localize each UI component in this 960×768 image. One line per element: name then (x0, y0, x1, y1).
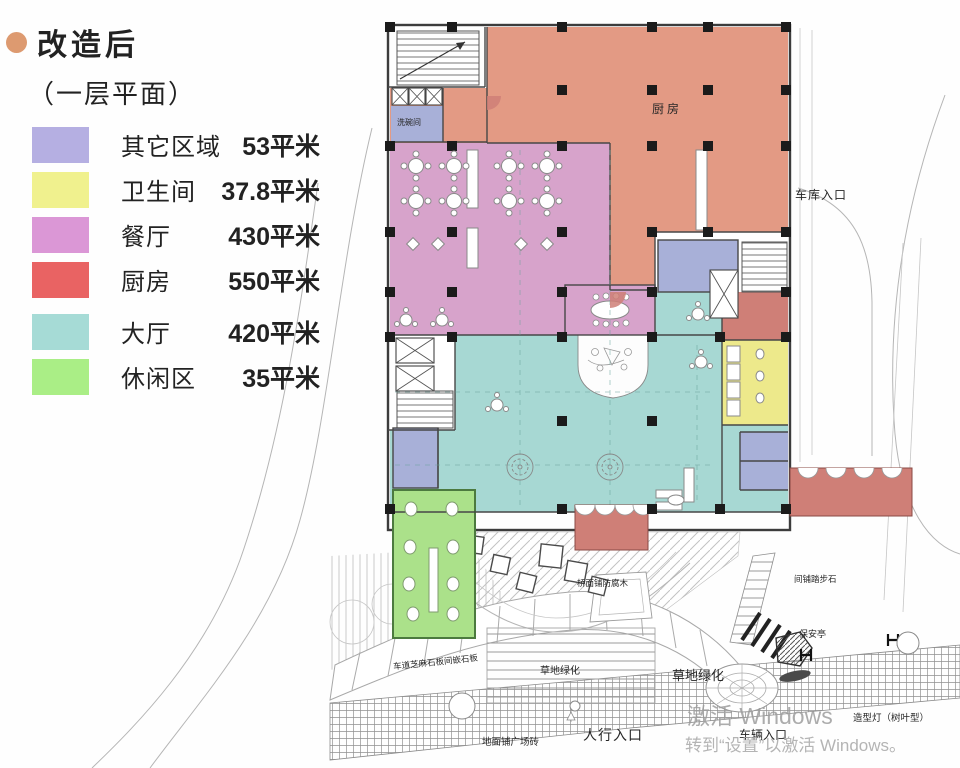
page-subtitle: （一层平面） (28, 74, 196, 111)
legend-label: 其它区域 (121, 127, 221, 162)
page-title: 改造后 (37, 20, 139, 64)
legend-value: 420平米 (228, 314, 320, 350)
site-label-stepping-stones: 间铺踏步石 (794, 573, 837, 585)
legend-swatch (32, 217, 89, 253)
legend-label: 卫生间 (121, 172, 196, 207)
site-label-grass-2: 草地绿化 (672, 665, 724, 684)
legend-row: 餐厅 430平米 (32, 216, 320, 253)
site-label-pedestrian-entrance: 人行入口 (583, 725, 643, 745)
legend-label: 大厅 (121, 314, 171, 349)
site-label-shaped-tree: 造型灯（树叶型） (853, 710, 929, 724)
legend-value: 53平米 (242, 127, 320, 163)
legend-swatch (32, 314, 89, 350)
legend-value: 430平米 (228, 217, 320, 253)
windows-activation-watermark-line2: 转到“设置”以激活 Windows。 (685, 731, 906, 756)
legend-list: 其它区域 53平米 卫生间 37.8平米 餐厅 430平米 厨房 550平米 (32, 126, 320, 403)
legend-row: 大厅 420平米 (32, 313, 320, 350)
site-label-security-booth: 保安亭 (799, 627, 826, 640)
legend-value: 550平米 (228, 262, 320, 298)
legend-panel: 改造后 （一层平面） 其它区域 53平米 卫生间 37.8平米 餐厅 430平米 (0, 0, 332, 768)
windows-activation-watermark-line1: 激活 Windows (687, 697, 833, 731)
legend-label: 餐厅 (121, 217, 171, 252)
legend-value: 37.8平米 (221, 172, 320, 208)
legend-swatch (32, 359, 89, 395)
legend-label: 厨房 (121, 262, 171, 297)
site-label-plaza-paving: 地面铺广场砖 (482, 734, 539, 748)
room-label-dishwashing: 洗碗间 (397, 117, 421, 128)
legend-row: 厨房 550平米 (32, 261, 320, 298)
legend-row: 其它区域 53平米 (32, 126, 320, 163)
legend-value: 35平米 (242, 359, 320, 395)
site-label-garage-entrance: 车库入口 (795, 186, 847, 203)
legend-row: 卫生间 37.8平米 (32, 171, 320, 208)
legend-label: 休闲区 (121, 359, 196, 394)
site-label-grass-1: 草地绿化 (540, 662, 580, 677)
legend-row: 休闲区 35平米 (32, 358, 320, 395)
room-label-kitchen: 厨房 (652, 100, 682, 117)
page: 改造后 （一层平面） 其它区域 53平米 卫生间 37.8平米 餐厅 430平米 (0, 0, 960, 768)
legend-swatch (32, 127, 89, 163)
legend-swatch (32, 172, 89, 208)
legend-swatch (32, 262, 89, 298)
title-bullet (6, 32, 27, 53)
building (385, 22, 912, 638)
site-label-bridge-deck: 桥面铺防腐木 (577, 577, 628, 589)
